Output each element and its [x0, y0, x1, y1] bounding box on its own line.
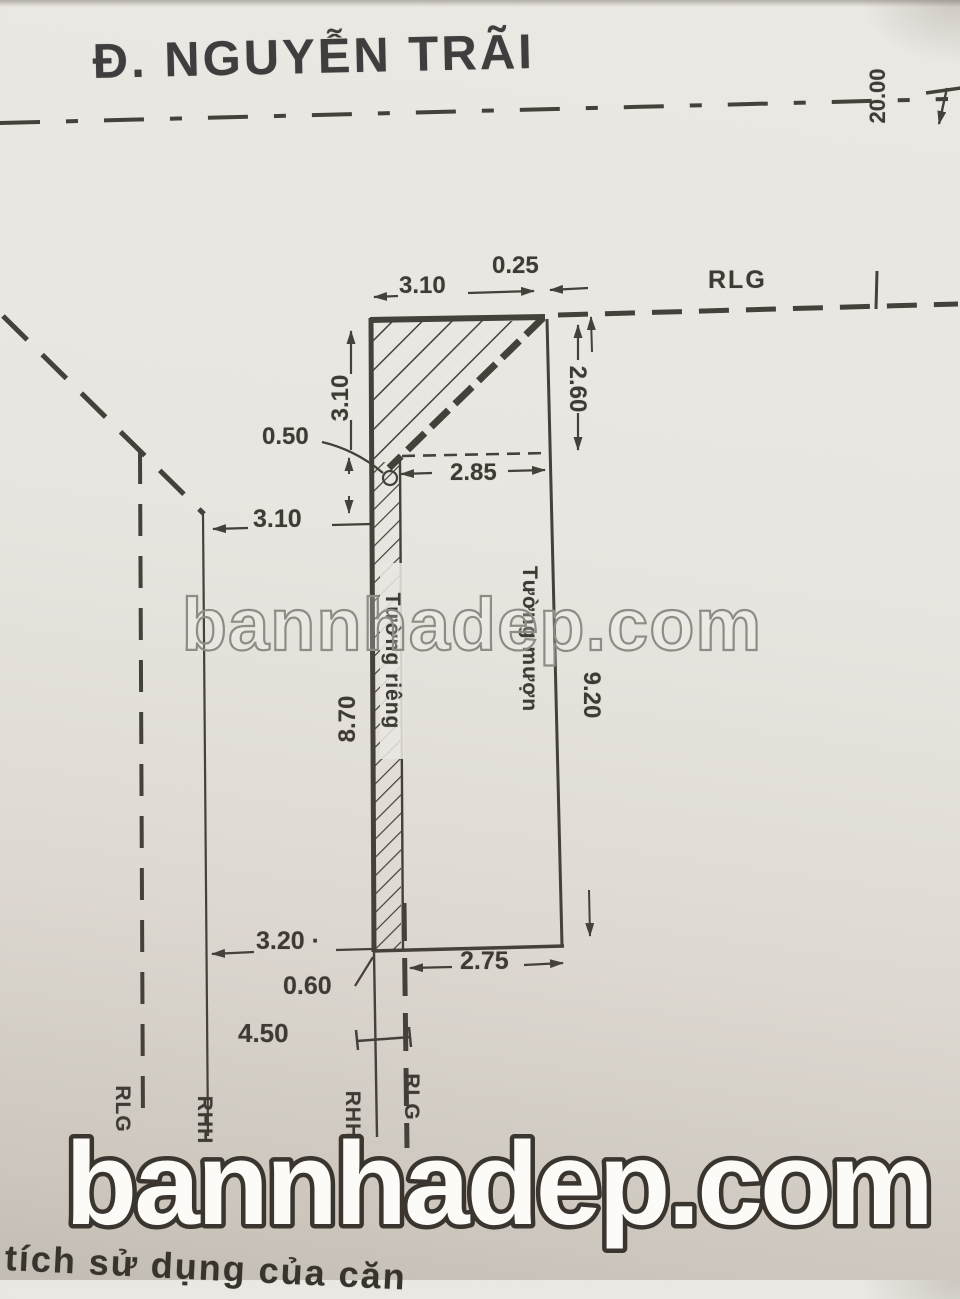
dim-inner-width-arrow-left: [401, 473, 432, 474]
left-rhh-solid-vertical: [203, 514, 208, 1136]
street-name: Đ. NGUYỄN TRÃI: [92, 24, 535, 90]
dim-rear-clearance-tick-right: [409, 1027, 411, 1047]
survey-linework: [0, 0, 960, 1280]
right-wall-line: [547, 319, 562, 946]
boundary-label-rlg-left: RLG: [110, 1074, 134, 1144]
dim-rear-left-arrow: [212, 952, 254, 954]
scanned-cadastral-page: { "street": { "label": "Đ. NGUYỄN TRÃI",…: [0, 0, 960, 1280]
parcel-top-edge: [370, 317, 545, 320]
rlg-top-tick: [876, 271, 877, 309]
boundary-label-rlg-right: RLG: [399, 1062, 423, 1132]
dim-setback: 0.50: [262, 423, 309, 451]
dim-top-offset-arrow: [550, 288, 588, 290]
dim-right-length-arrow-up: [591, 317, 592, 352]
dim-right-length-arrow-down: [589, 890, 590, 936]
left-wall-label: Tường riêng: [380, 563, 404, 759]
dim-left-clearance-arrow: [213, 528, 248, 529]
dim-rear-clearance: 4.50: [238, 1018, 289, 1049]
dim-rear-clearance-tick-left: [356, 1030, 358, 1050]
rlg-top-label: RLG: [708, 266, 767, 295]
dim-right-length: 9.20: [577, 659, 605, 731]
strip-left-edge: [371, 318, 374, 952]
dim-inner-width: 2.85: [446, 459, 501, 487]
left-rlg-dashed-vertical: [140, 452, 143, 1128]
dim-top-offset: 0.25: [492, 252, 539, 280]
dim-rear-left-line: [336, 949, 372, 950]
dim-strip-length: 8.70: [334, 683, 362, 755]
dim-rear-width-arrow-right: [524, 963, 563, 965]
dim-right-upper: 2.60: [563, 353, 591, 425]
interior-dashed-line: [402, 453, 547, 456]
dim-top-width: 3.10: [399, 272, 446, 300]
below-rhh-solid-vertical: [374, 952, 377, 1137]
boundary-label-rhh-left: RHH: [192, 1085, 216, 1155]
dim-triangle-height: 3.10: [327, 362, 355, 434]
dim-rear-width-arrow-left: [410, 967, 452, 968]
dim-street-width: 20.00: [865, 58, 891, 134]
rlg-top-dashed-line: [558, 304, 958, 315]
street-width-arrow: [939, 88, 947, 124]
street-line-end-tick: [926, 88, 960, 93]
dim-inner-width-arrow-right: [508, 470, 545, 471]
dim-left-clearance: 3.10: [253, 505, 302, 534]
dim-rear-width: 2.75: [460, 947, 509, 976]
dim-left-clearance-line: [332, 524, 371, 525]
left-diagonal-dashed: [3, 316, 204, 514]
right-wall-label: Tường mượn: [517, 549, 541, 729]
street-dashed-line: [0, 99, 948, 123]
boundary-label-rhh-right: RHH: [340, 1080, 364, 1150]
strip-width-leader: [355, 957, 373, 986]
dim-rear-clearance-line: [357, 1037, 411, 1041]
triangle-hatch: [372, 321, 537, 460]
dim-rear-left: 3.20 ·: [256, 927, 320, 956]
dim-strip-width: 0.60: [283, 972, 332, 1001]
dim-top-width-arrow-right: [468, 291, 534, 293]
dim-top-width-arrow-left: [374, 296, 398, 297]
